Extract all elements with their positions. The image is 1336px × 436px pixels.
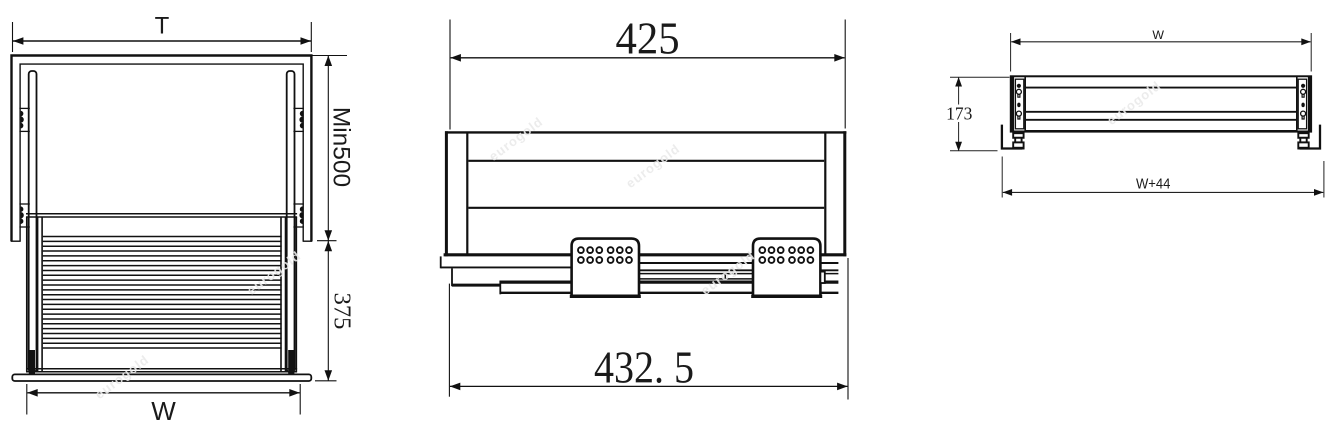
- svg-text:eurogold: eurogold: [486, 114, 546, 164]
- svg-text:173: 173: [946, 103, 973, 123]
- svg-text:375: 375: [328, 293, 355, 330]
- svg-text:W: W: [151, 396, 176, 426]
- svg-text:W: W: [1152, 28, 1164, 42]
- svg-text:eurogold: eurogold: [623, 141, 683, 191]
- svg-text:Min500: Min500: [328, 107, 355, 187]
- svg-text:T: T: [155, 13, 170, 40]
- svg-text:W+44: W+44: [1136, 176, 1171, 192]
- svg-text:432. 5: 432. 5: [594, 343, 694, 393]
- svg-text:425: 425: [616, 15, 680, 64]
